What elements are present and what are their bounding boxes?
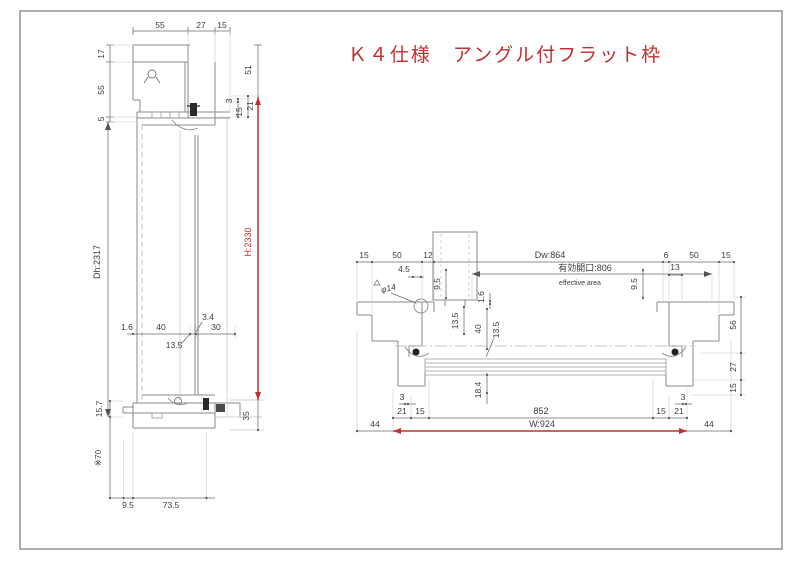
dim-40: 40 bbox=[473, 324, 483, 334]
dim-right-15: 15 bbox=[234, 107, 244, 117]
dim-effective-opening-en: effective area bbox=[559, 280, 601, 287]
sill-pivot-detail bbox=[152, 398, 225, 419]
dim-phi14: φ14 bbox=[380, 281, 397, 294]
dim-sill-70: ※70 bbox=[93, 449, 103, 466]
head-bolt bbox=[190, 103, 197, 116]
head-anchor-clip-icon bbox=[144, 70, 160, 83]
dim-95-left: 9.5 bbox=[432, 278, 442, 290]
dim-top-l15: 15 bbox=[359, 250, 369, 260]
drawing-title: Ｋ４仕様 アングル付フラット枠 bbox=[348, 44, 662, 66]
dim-top-r15: 15 bbox=[721, 250, 731, 260]
dim-bottom-95: 9.5 bbox=[122, 500, 134, 510]
dim-top-r50: 50 bbox=[689, 250, 699, 260]
dim-head-15: 15 bbox=[217, 20, 227, 30]
drawing-canvas: Ｋ４仕様 アングル付フラット枠 bbox=[0, 0, 800, 565]
dim-top-l12: 12 bbox=[423, 250, 433, 260]
dim-right-21: 21 bbox=[245, 101, 255, 111]
dim-bottom-r3: 3 bbox=[681, 392, 686, 402]
dim-mid-34: 3.4 bbox=[202, 312, 214, 322]
dim-bottom-l21: 21 bbox=[397, 406, 407, 416]
dim-135-a: 13.5 bbox=[450, 312, 460, 329]
dim-13: 13 bbox=[670, 262, 680, 272]
dim-mid-135: 13.5 bbox=[166, 340, 183, 350]
door-panel bbox=[425, 359, 666, 375]
dim-45: 4.5 bbox=[398, 264, 410, 274]
horizontal-section-dimensions: 15 50 12 Dw:864 有効開口:806 effective area … bbox=[356, 250, 746, 434]
dim-184: 18.4 bbox=[473, 381, 483, 398]
open-door-leaf bbox=[433, 232, 477, 306]
dim-16: 1.6 bbox=[476, 291, 486, 303]
dim-left-55: 55 bbox=[96, 85, 106, 95]
dim-bottom-l3: 3 bbox=[400, 392, 405, 402]
dim-right-51: 51 bbox=[243, 65, 253, 75]
dim-bottom-852: 852 bbox=[533, 406, 548, 416]
dim-bottom-r21: 21 bbox=[674, 406, 684, 416]
dim-mid-30: 30 bbox=[211, 322, 221, 332]
dim-overall-width: W:924 bbox=[529, 419, 555, 429]
dim-door-height: Dh:2317 bbox=[92, 245, 102, 279]
dim-head-55: 55 bbox=[155, 20, 165, 30]
right-jamb bbox=[657, 302, 734, 386]
dim-top-l50: 50 bbox=[392, 250, 402, 260]
dim-door-width: Dw:864 bbox=[535, 250, 566, 260]
dim-right-56: 56 bbox=[728, 320, 738, 330]
dim-top-r6: 6 bbox=[664, 250, 669, 260]
dim-frame-height: H:2330 bbox=[243, 227, 253, 256]
dim-mid-16: 1.6 bbox=[121, 322, 133, 332]
left-jamb bbox=[357, 302, 434, 386]
dim-bottom-735: 73.5 bbox=[163, 500, 180, 510]
dim-right-15: 15 bbox=[728, 383, 738, 393]
dim-left-17: 17 bbox=[96, 49, 106, 59]
dim-sill-157: 15.7 bbox=[94, 400, 104, 417]
dim-head-27: 27 bbox=[196, 20, 206, 30]
dim-right-3: 3 bbox=[224, 98, 234, 103]
dim-mid-40: 40 bbox=[156, 322, 166, 332]
dim-right-35: 35 bbox=[241, 411, 251, 421]
dim-135-b: 13.5 bbox=[491, 321, 501, 338]
dim-bottom-l15: 15 bbox=[415, 406, 425, 416]
pivot-circle bbox=[414, 299, 428, 313]
dim-bottom-r44: 44 bbox=[704, 419, 714, 429]
hinge-details bbox=[405, 347, 686, 356]
dim-effective-opening: 有効開口:806 bbox=[558, 262, 612, 273]
dim-bottom-l44: 44 bbox=[370, 419, 380, 429]
dim-95-right: 9.5 bbox=[629, 278, 639, 290]
vertical-section-dimensions: 55 27 15 17 55 5 Dh:2317 H:2330 51 3 21 … bbox=[92, 20, 262, 510]
dim-bottom-r15: 15 bbox=[656, 406, 666, 416]
overall-height-line bbox=[255, 97, 261, 400]
dim-right-27: 27 bbox=[728, 362, 738, 372]
dim-left-5: 5 bbox=[96, 116, 106, 121]
sheet-border bbox=[20, 11, 782, 549]
dimension-ticks bbox=[105, 95, 259, 499]
